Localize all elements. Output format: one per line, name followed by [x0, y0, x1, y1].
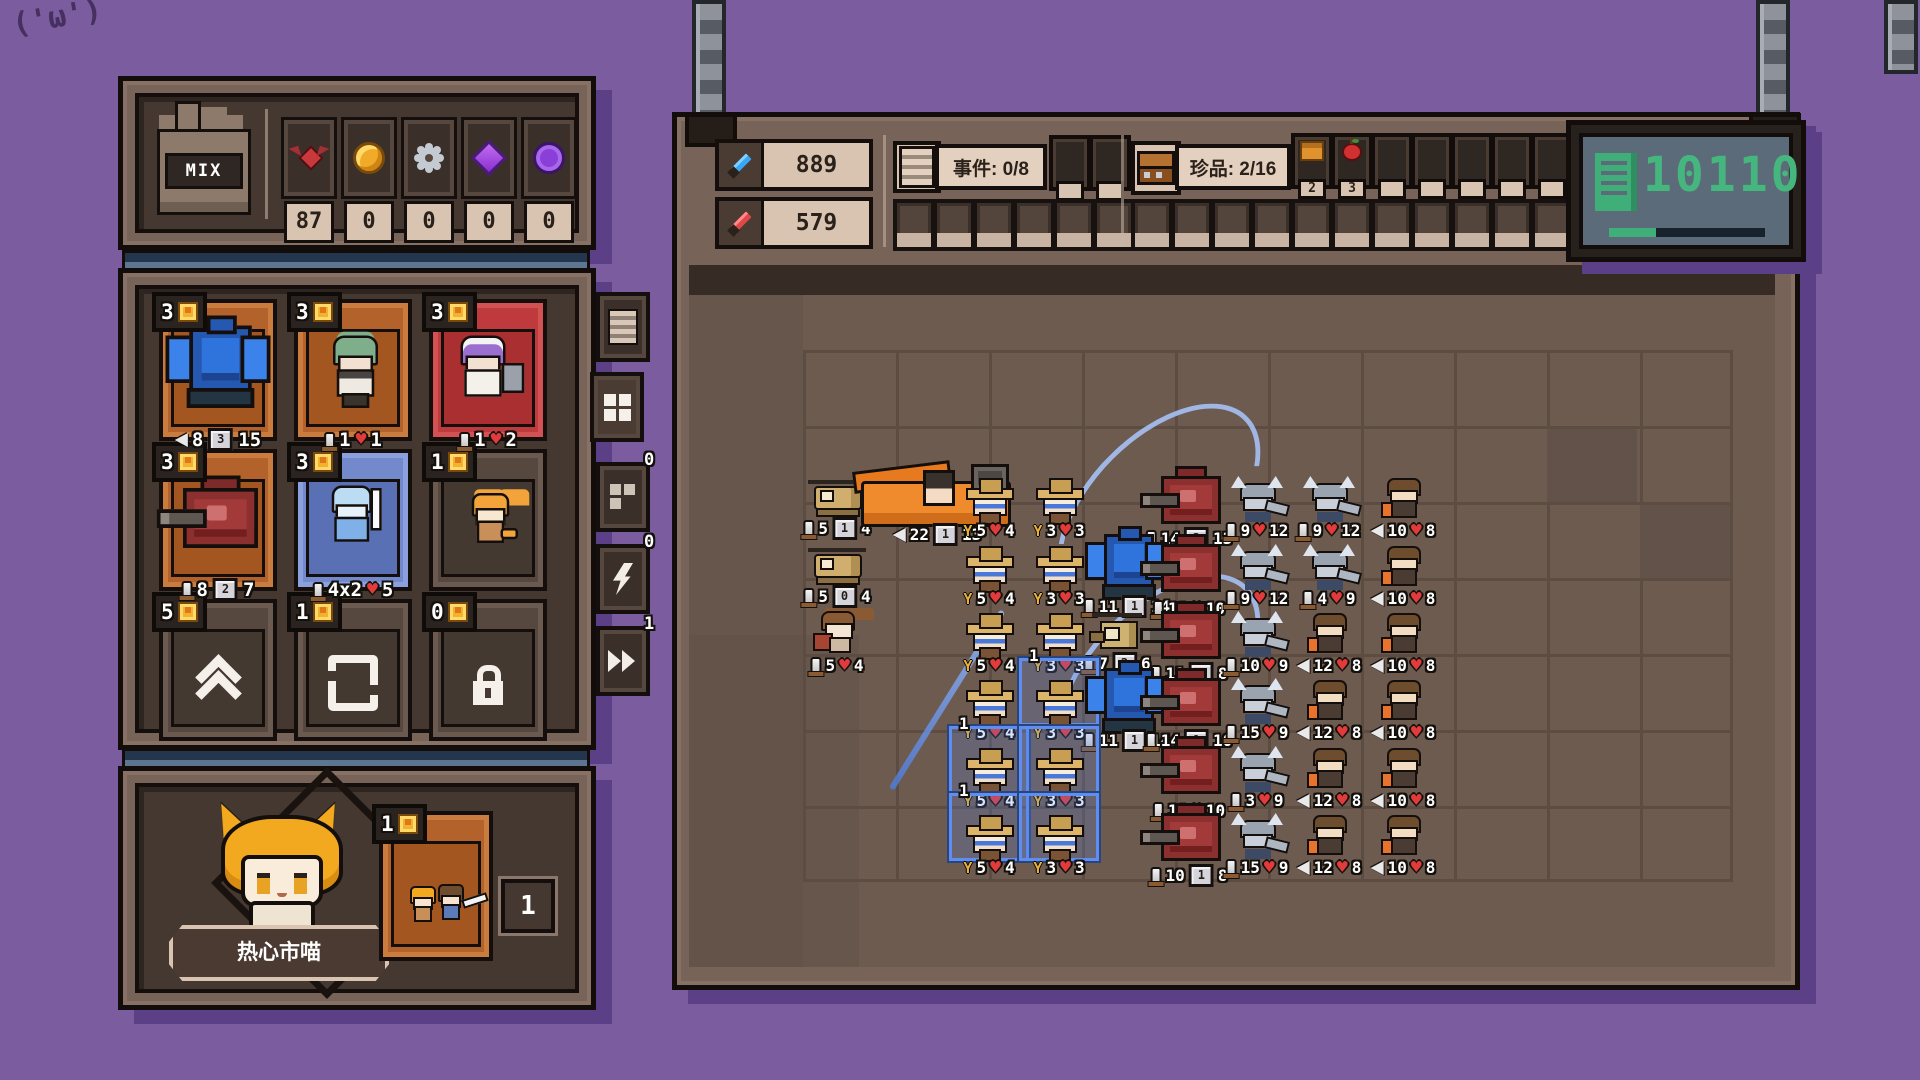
- item-slot[interactable]: [1451, 133, 1493, 189]
- item-slot[interactable]: [1053, 199, 1095, 251]
- heart-icon: ♥: [1337, 861, 1348, 875]
- redmech-sprite: [1150, 736, 1228, 802]
- unit-tag: 1: [959, 781, 969, 800]
- coin-icon: [178, 452, 198, 472]
- corner-doodle: ('ω'): [10, 0, 105, 43]
- viking-sprite: [1231, 813, 1283, 859]
- ranged-attack-icon: [175, 433, 188, 447]
- unit-archer[interactable]: 12♥8: [1297, 662, 1361, 740]
- item-slot[interactable]: [973, 199, 1015, 251]
- tab-badge: 0: [644, 532, 654, 552]
- divider: [265, 109, 268, 219]
- item-slot[interactable]: [1371, 133, 1413, 189]
- unit-cowboy[interactable]: Y3♥3: [1027, 460, 1091, 538]
- shield-stat-icon: 1: [1189, 864, 1214, 887]
- redmech-sprite: [1150, 803, 1228, 869]
- heart-icon: ♥: [491, 433, 502, 447]
- ranged-attack-icon: [1297, 861, 1310, 875]
- viking-sprite: [1231, 544, 1283, 590]
- card-cost-badge: 0: [422, 592, 477, 632]
- redmech-sprite: [1150, 601, 1228, 667]
- unit-redmech[interactable]: 1018: [1147, 797, 1231, 885]
- unit-viking[interactable]: 15♥9: [1225, 797, 1289, 875]
- archer-sprite: [1380, 613, 1426, 657]
- item-slot[interactable]: 3: [1331, 133, 1373, 189]
- code-display: 10110: [1566, 120, 1806, 262]
- chibi-brown-cat: [438, 884, 462, 920]
- tab-energy[interactable]: [596, 544, 650, 614]
- game-screen: ('ω') MIX 87 0 0 0 0 3 8315: [0, 0, 1920, 1080]
- panel-band: [689, 265, 1775, 295]
- cowboy-sprite: [1034, 815, 1084, 859]
- event-counter[interactable]: 事件: 0/8: [935, 144, 1047, 190]
- item-slot[interactable]: [1093, 199, 1135, 251]
- viking-sprite: [1231, 678, 1283, 724]
- unit-cowboy[interactable]: Y5♥4: [957, 460, 1021, 538]
- lock-icon: [473, 681, 503, 705]
- coin-icon: [353, 142, 385, 174]
- chibi-yellow-cat: [410, 886, 434, 922]
- unit-tag: 1: [959, 714, 969, 733]
- item-slot[interactable]: [1171, 199, 1213, 251]
- resource-coin: 0: [341, 117, 397, 243]
- lock-card[interactable]: 0: [429, 599, 547, 741]
- tab-log[interactable]: [596, 292, 650, 362]
- shield-stat-icon: 3: [208, 428, 233, 451]
- cowboy-sprite: [1034, 613, 1084, 657]
- item-slot[interactable]: [1013, 199, 1055, 251]
- archer-sprite: [1306, 748, 1352, 792]
- ranged-attack-icon: [1371, 861, 1384, 875]
- player-avatar: [213, 803, 343, 943]
- item-slot[interactable]: [1411, 133, 1453, 189]
- resource-value: 0: [404, 201, 454, 243]
- coin-icon: [313, 602, 333, 622]
- viking-sprite: [1303, 476, 1355, 522]
- redmech-sprite: [1150, 534, 1228, 600]
- melee-attack-icon: [324, 432, 335, 449]
- item-slot[interactable]: [1211, 199, 1253, 251]
- resource-value: 0: [464, 201, 514, 243]
- item-slot[interactable]: [1089, 135, 1131, 191]
- boxes-icon: [610, 484, 637, 511]
- bag-icon: [1300, 141, 1324, 161]
- card-cost-badge: 3: [287, 292, 342, 332]
- coin-icon: [178, 302, 198, 322]
- resource-gear: 0: [401, 117, 457, 243]
- item-slot[interactable]: [1049, 135, 1091, 191]
- unit-archer[interactable]: 10♥8: [1371, 460, 1435, 538]
- reroll-card[interactable]: 1: [294, 599, 412, 741]
- item-count: 3: [1338, 179, 1366, 199]
- maidgreen-sprite: [322, 336, 385, 409]
- ranged-attack-icon: [893, 528, 906, 542]
- redmech-sprite: [1150, 466, 1228, 532]
- resource-value: 0: [344, 201, 394, 243]
- cowboy-sprite: [1034, 546, 1084, 590]
- iceknight-sprite: [321, 486, 386, 559]
- attack-total-field: 889: [715, 139, 873, 191]
- melee-attack-icon: [182, 581, 193, 598]
- archer-sprite: [1380, 680, 1426, 724]
- coin-icon: [448, 602, 468, 622]
- defense-total: 579: [764, 210, 869, 236]
- upgrade-icon: [194, 661, 242, 705]
- divider: [1121, 135, 1124, 247]
- coin-icon: [313, 302, 333, 322]
- cowboy-sprite: [1034, 478, 1084, 522]
- card-cost: 1: [381, 812, 394, 836]
- cowboy-sprite: [964, 680, 1014, 724]
- heart-icon: ♥: [1060, 861, 1071, 875]
- divider: [883, 135, 886, 247]
- shield-stat-icon: 2: [213, 578, 238, 601]
- green-doc-icon: [1595, 153, 1637, 211]
- viking-sprite: [1303, 544, 1355, 590]
- cowboy-sprite: [964, 748, 1014, 792]
- guild-castle-icon: MIX: [157, 101, 253, 217]
- display-progress: [1609, 228, 1765, 237]
- archer-sprite: [1306, 815, 1352, 859]
- player-team-card[interactable]: 1: [379, 811, 493, 961]
- heart-icon: ♥: [839, 659, 850, 673]
- display-value: 10110: [1643, 147, 1803, 203]
- grid-cell-dark: [1640, 505, 1730, 578]
- gem-icon: [471, 140, 508, 177]
- coin-icon: [448, 302, 468, 322]
- ff-icon: [608, 650, 638, 672]
- player-panel: 热心市喵 1 1: [118, 766, 596, 1010]
- viking-sprite: [1231, 476, 1283, 522]
- unit-tag: 1: [1029, 646, 1039, 665]
- cowboy-sprite: [1034, 748, 1084, 792]
- cowboy-sprite: [1034, 680, 1084, 724]
- item-slot[interactable]: [1251, 199, 1293, 251]
- upgrade-card[interactable]: 5: [159, 599, 277, 741]
- resource-panel: MIX 87 0 0 0 0: [118, 76, 596, 250]
- battlefield: 514 22113 Y5♥4 Y3♥3 14213 9♥12 9♥12 10♥8: [689, 295, 1775, 967]
- melee-attack-icon: [1151, 867, 1162, 884]
- resource-bat: 87: [281, 117, 337, 243]
- chain-right: [1756, 0, 1790, 126]
- item-slot[interactable]: [1331, 199, 1373, 251]
- viking-sprite: [1231, 611, 1283, 657]
- chain-corner: [1884, 0, 1918, 74]
- melee-attack-icon: [810, 657, 821, 674]
- event-doc-icon: [893, 141, 941, 193]
- wrench-icon: Y: [963, 859, 972, 877]
- green-maid-card[interactable]: 3 1♥1: [294, 299, 412, 441]
- card-cost-badge: 3: [422, 292, 477, 332]
- attack-total: 889: [764, 152, 869, 178]
- defense-total-field: 579: [715, 197, 873, 249]
- heart-icon: ♥: [356, 433, 367, 447]
- bolt-icon: [613, 563, 633, 595]
- archer-sprite: [1306, 680, 1352, 724]
- tab-speed[interactable]: [596, 626, 650, 696]
- item-count: 2: [1298, 179, 1326, 199]
- maidpurple-sprite: [454, 336, 522, 409]
- wrench-icon: Y: [1033, 859, 1042, 877]
- melee-attack-icon: [1226, 859, 1237, 876]
- blue-sword-icon: [725, 150, 755, 180]
- cowboy-sprite: [964, 546, 1014, 590]
- token-icon: [533, 142, 565, 174]
- tab-storage[interactable]: [596, 462, 650, 532]
- card-cost-badge: 3: [152, 292, 207, 332]
- bat-icon: [292, 145, 326, 171]
- shield-stat-icon: 1: [933, 523, 958, 546]
- player-name: 热心市喵: [169, 925, 389, 981]
- archer-sprite: [1380, 478, 1426, 522]
- unit-archer[interactable]: 10♥8: [1371, 797, 1435, 875]
- guild-name: MIX: [165, 153, 243, 189]
- heart-icon: ♥: [990, 861, 1001, 875]
- drone-sprite: [1092, 613, 1142, 657]
- heart-icon: ♥: [367, 583, 378, 597]
- heart-icon: ♥: [1264, 861, 1275, 875]
- item-slot[interactable]: [1491, 133, 1533, 189]
- doc-icon: [608, 309, 638, 345]
- coin-icon: [448, 452, 468, 472]
- item-slot[interactable]: [1291, 199, 1333, 251]
- unit-archer[interactable]: 10♥8: [1371, 662, 1435, 740]
- unit-archer[interactable]: 12♥8: [1297, 797, 1361, 875]
- archer-sprite: [1306, 613, 1352, 657]
- tab-badge: 1: [644, 614, 654, 634]
- cowboy-sprite: [964, 613, 1014, 657]
- cowboy-sprite: [964, 478, 1014, 522]
- resource-value: 87: [284, 201, 334, 243]
- archer-sprite: [1380, 546, 1426, 590]
- redmech-sprite: [1150, 668, 1228, 734]
- item-slot[interactable]: [893, 199, 935, 251]
- item-slot[interactable]: [1371, 199, 1413, 251]
- archer-sprite: [1380, 815, 1426, 859]
- redmech-sprite: [169, 476, 267, 559]
- unit-cowboy[interactable]: 1 Y5♥4: [957, 797, 1021, 875]
- red-sword-icon: [725, 208, 755, 238]
- apple-icon: [1342, 143, 1362, 161]
- item-slot[interactable]: [933, 199, 975, 251]
- chain-left: [692, 0, 726, 126]
- item-slot[interactable]: [1451, 199, 1493, 251]
- item-slot[interactable]: 2: [1291, 133, 1333, 189]
- unit-catgirl[interactable]: 5♥4: [805, 595, 869, 673]
- ice-knight-card[interactable]: 3 4x2♥5: [294, 449, 412, 591]
- coin-icon: [398, 814, 418, 834]
- reroll-icon: [328, 655, 378, 711]
- blue-mech-card[interactable]: 3 8315: [159, 299, 277, 441]
- coin-icon: [178, 602, 198, 622]
- unit-cowboy[interactable]: Y3♥3: [1027, 797, 1091, 875]
- tab-roster[interactable]: [590, 372, 644, 442]
- item-slot[interactable]: [1131, 199, 1173, 251]
- melee-attack-icon: [459, 432, 470, 449]
- grid-icon: [604, 394, 631, 421]
- archer-sprite: [1380, 748, 1426, 792]
- heart-icon: ♥: [1411, 861, 1422, 875]
- resource-token: 0: [521, 117, 577, 243]
- team-card-count: 1: [501, 879, 555, 933]
- treasure-chest-icon: [1131, 141, 1181, 195]
- viking-sprite: [1231, 746, 1283, 792]
- red-mech-card[interactable]: 3 827: [159, 449, 277, 591]
- orangecat-sprite: [461, 493, 516, 558]
- item-slot[interactable]: [1491, 199, 1533, 251]
- melee-attack-icon: [313, 582, 324, 599]
- treasure-counter[interactable]: 珍品: 2/16: [1175, 144, 1291, 190]
- shop-panel: 3 8315 3 1♥1 3 1♥2 3 827 3 4x2♥5 1 5 1 0: [118, 268, 596, 750]
- catgirl-sprite: [814, 611, 860, 657]
- unit-viking[interactable]: 15♥9: [1225, 662, 1289, 740]
- unit-viking[interactable]: 9♥12: [1297, 460, 1361, 538]
- resource-gem: 0: [461, 117, 517, 243]
- tab-badge: 0: [644, 450, 654, 470]
- unit-viking[interactable]: 9♥12: [1225, 460, 1289, 538]
- grid-cell-dark: [1547, 429, 1637, 502]
- resource-value: 0: [524, 201, 574, 243]
- item-slot[interactable]: [1411, 199, 1453, 251]
- purple-maid-card[interactable]: 3 1♥2: [429, 299, 547, 441]
- cowboy-sprite: [964, 815, 1014, 859]
- gear-icon: [418, 147, 440, 169]
- coin-icon: [313, 452, 333, 472]
- heli-sprite: [807, 542, 867, 590]
- orange-cat-card[interactable]: 1: [429, 449, 547, 591]
